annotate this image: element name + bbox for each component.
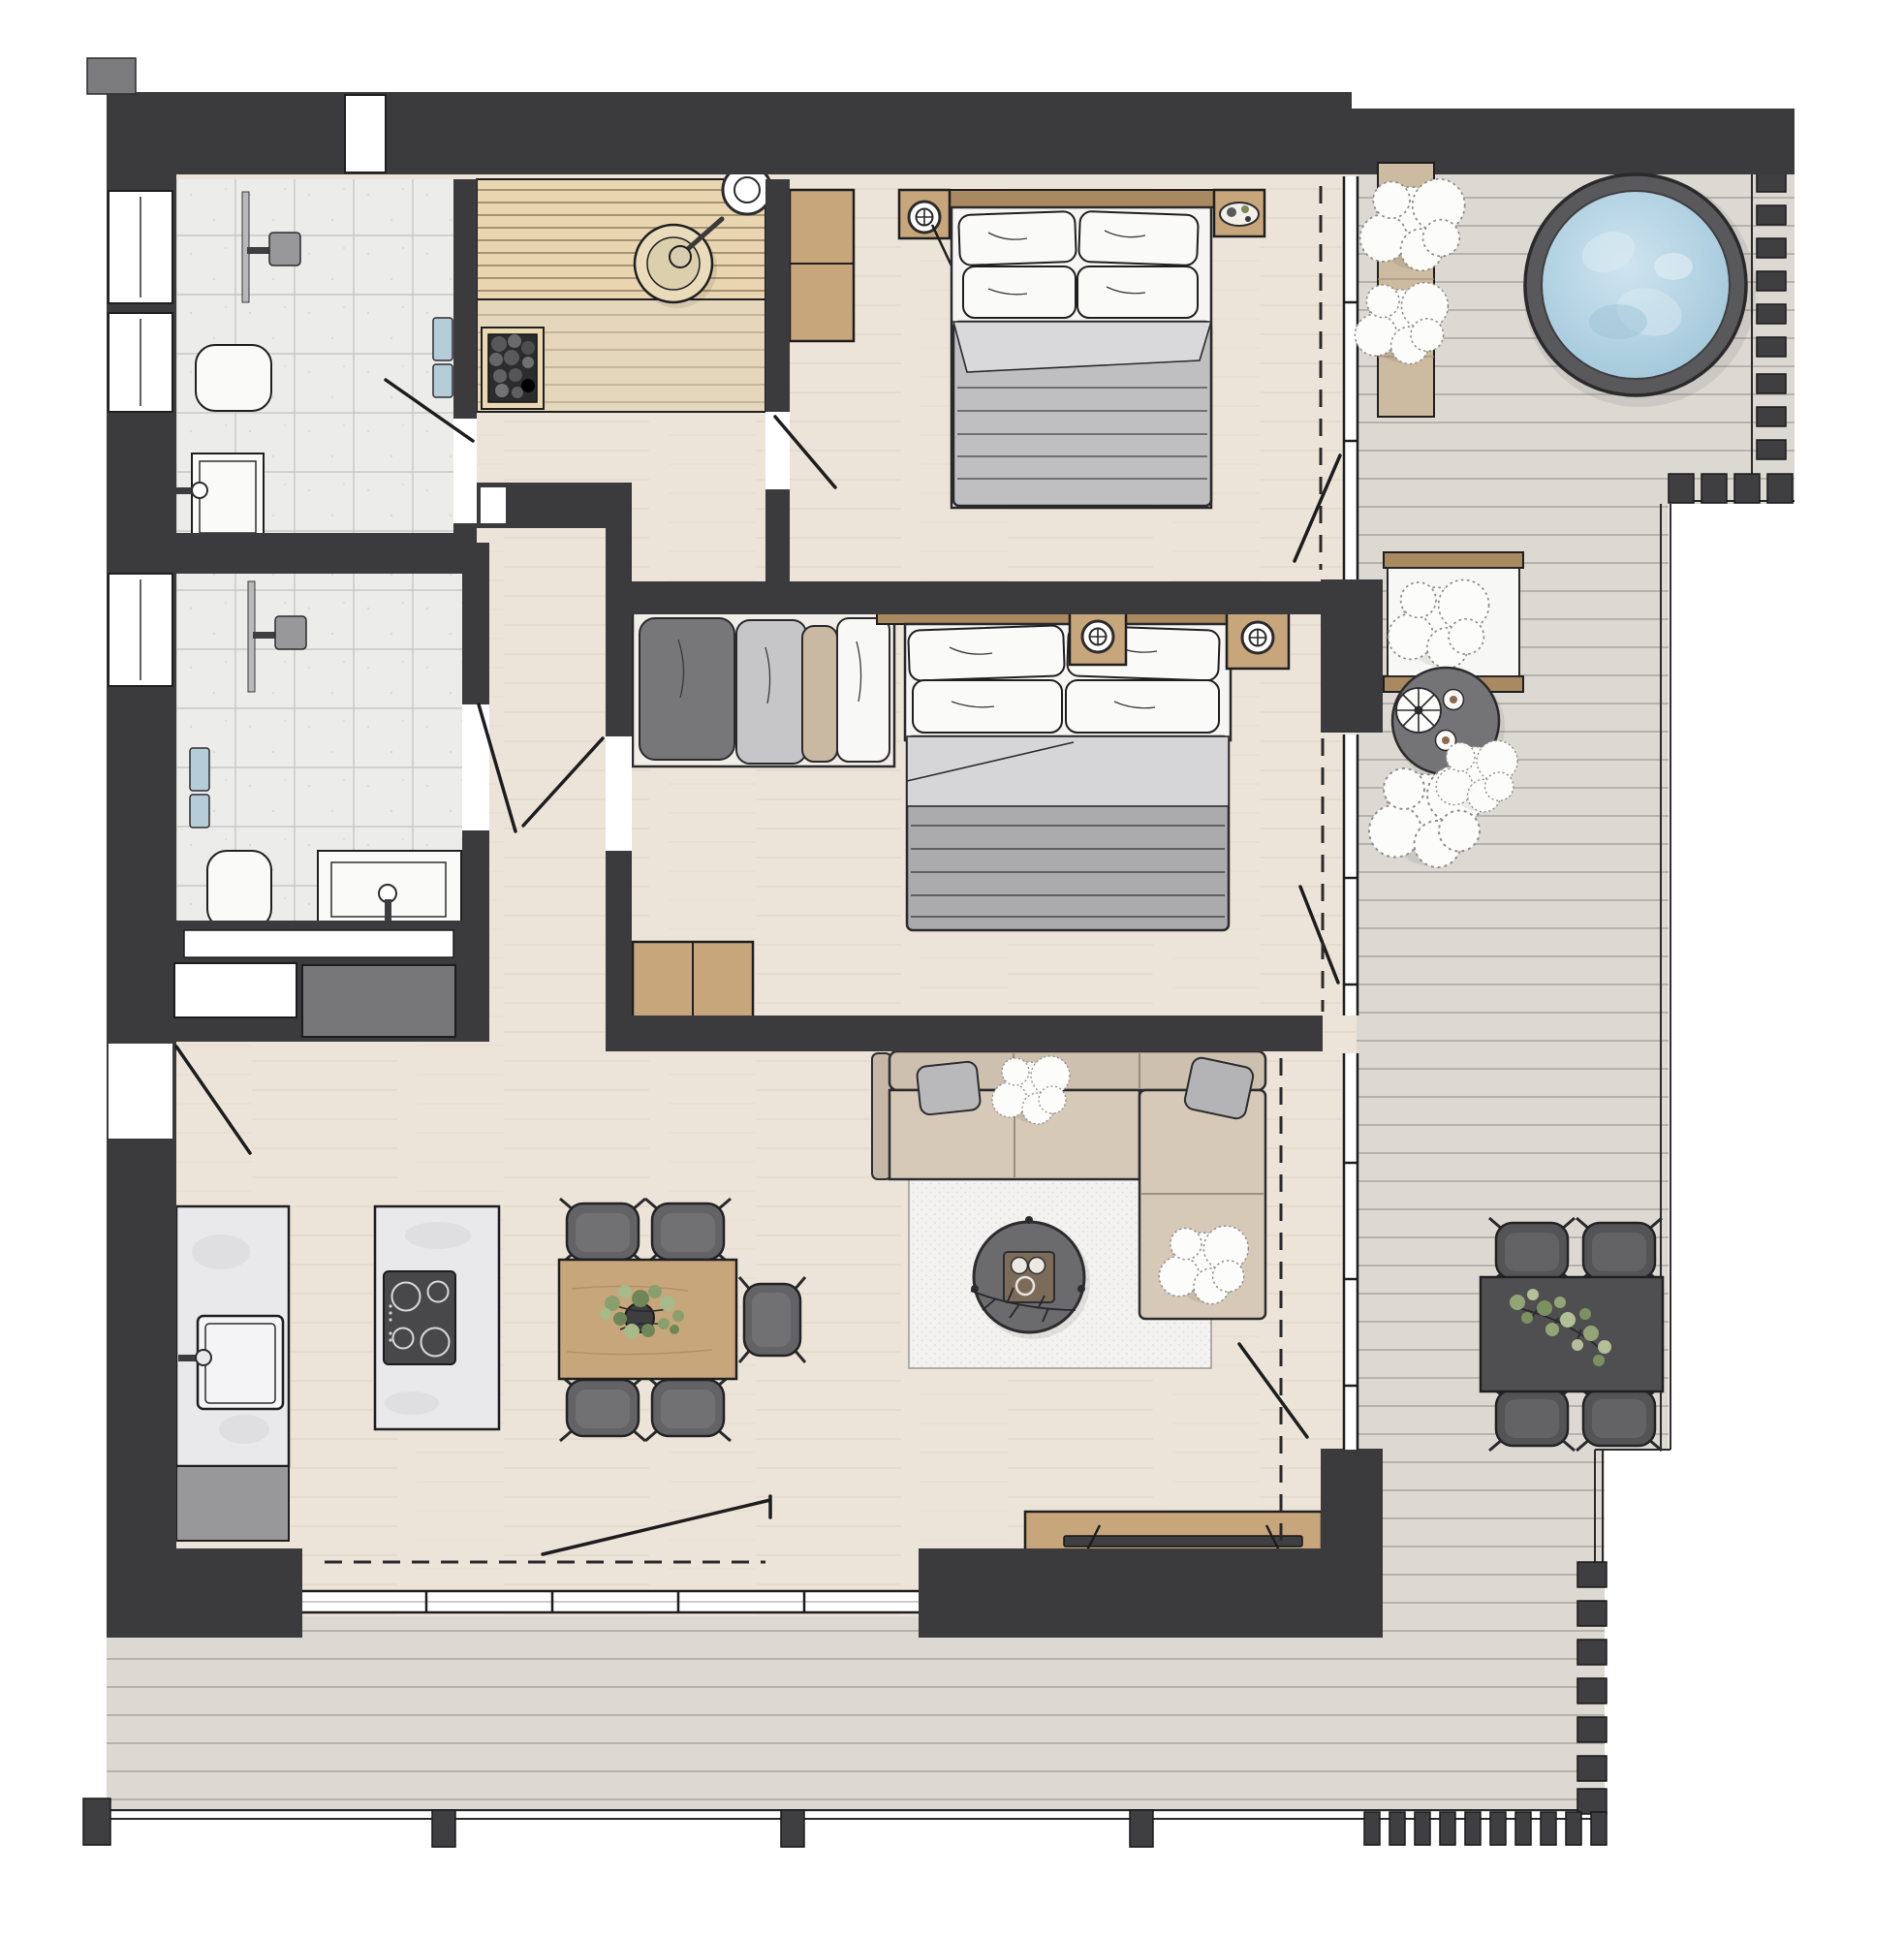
wall-stub bbox=[453, 523, 477, 574]
table-lamp-icon bbox=[909, 202, 940, 233]
dining-chair bbox=[645, 1375, 731, 1441]
pillow-gray bbox=[736, 620, 806, 764]
sauna-stove bbox=[482, 328, 544, 409]
sofa-pillow-gray bbox=[917, 1061, 982, 1115]
wall-east-jut bbox=[1321, 579, 1383, 733]
wall-bedroom-divider bbox=[630, 581, 1321, 614]
tv-icon bbox=[1064, 1536, 1302, 1547]
induction-cooktop bbox=[384, 1271, 455, 1364]
bed-headboard bbox=[901, 190, 1264, 207]
exterior-step bbox=[87, 58, 136, 94]
dining-chair bbox=[560, 1375, 645, 1441]
closet-niche bbox=[184, 930, 453, 957]
storage-box bbox=[174, 963, 297, 1017]
railing-posts-top-right bbox=[1757, 172, 1786, 459]
sliding-door-bedroom1 bbox=[1344, 176, 1358, 579]
wall-bedroom2-west-upper bbox=[606, 528, 632, 736]
door-opening-bedroom1 bbox=[765, 412, 790, 489]
shower-arm bbox=[253, 632, 276, 639]
shower-arm bbox=[247, 247, 272, 254]
outdoor-table bbox=[1481, 1277, 1663, 1391]
shower-head-icon bbox=[275, 616, 306, 649]
cup-icon bbox=[1012, 1258, 1028, 1274]
pillow-tan bbox=[802, 626, 837, 762]
wall-hall-band bbox=[453, 483, 632, 528]
wall-bedroom2-west-lower bbox=[606, 851, 632, 1017]
wall-north bbox=[107, 92, 1352, 174]
entry-door-opening bbox=[109, 1044, 172, 1139]
toilet bbox=[196, 345, 271, 411]
table-lamp-icon bbox=[1242, 622, 1273, 653]
dining-chair bbox=[560, 1199, 645, 1265]
wall-niche bbox=[481, 487, 506, 523]
wall-bathroom-divider bbox=[174, 533, 465, 574]
sliding-door-bedroom2 bbox=[1344, 735, 1358, 1016]
cup-icon bbox=[1029, 1258, 1046, 1274]
toilet bbox=[207, 851, 271, 928]
wall-bathroom1-east bbox=[453, 179, 477, 419]
hot-tub-water bbox=[1542, 191, 1730, 379]
door-opening-bedroom2 bbox=[606, 736, 632, 851]
bed-duvet bbox=[907, 736, 1229, 930]
base-cabinet bbox=[176, 1466, 289, 1541]
outdoor-chair bbox=[1576, 1385, 1662, 1451]
hot-tub bbox=[1523, 174, 1756, 407]
floor-plan-canvas bbox=[0, 0, 1904, 1938]
utility-cabinet bbox=[302, 965, 455, 1037]
outdoor-chair bbox=[1489, 1385, 1575, 1451]
towels bbox=[190, 795, 209, 828]
window bbox=[345, 95, 386, 172]
parasol-base-icon bbox=[1396, 688, 1441, 733]
floor-plan-drawing bbox=[0, 0, 1904, 1938]
sauna bbox=[477, 179, 765, 412]
shower-head-icon bbox=[269, 233, 300, 266]
tray bbox=[1220, 203, 1259, 226]
outdoor-chair bbox=[1576, 1218, 1662, 1284]
daybed bbox=[633, 611, 894, 766]
pillow-dark bbox=[640, 618, 734, 760]
ladle-bowl bbox=[670, 246, 691, 267]
dining-chair bbox=[739, 1277, 805, 1362]
outdoor-chair bbox=[1489, 1218, 1575, 1284]
wall-stub bbox=[765, 489, 790, 581]
deck-right-lower bbox=[1357, 1450, 1605, 1638]
deck-bottom-terrace bbox=[107, 1616, 1605, 1812]
dining-chair bbox=[645, 1199, 731, 1265]
wall-south-left bbox=[107, 1548, 302, 1638]
pillow-white bbox=[837, 618, 890, 762]
towels bbox=[433, 364, 453, 397]
bed-duvet bbox=[953, 322, 1211, 506]
table-lamp-icon bbox=[1082, 621, 1113, 652]
wall-south-right bbox=[919, 1548, 1383, 1638]
sliding-door-living bbox=[1344, 1053, 1358, 1450]
towels bbox=[190, 748, 209, 791]
wall-bedroom2-south bbox=[606, 1016, 1323, 1051]
sliding-door-south bbox=[302, 1591, 919, 1612]
wall-southeast-corner bbox=[1321, 1449, 1383, 1550]
wardrobe bbox=[790, 190, 854, 341]
sauna-upper-bench bbox=[477, 179, 765, 299]
wall-sauna-east bbox=[765, 179, 790, 412]
towels bbox=[433, 318, 453, 360]
